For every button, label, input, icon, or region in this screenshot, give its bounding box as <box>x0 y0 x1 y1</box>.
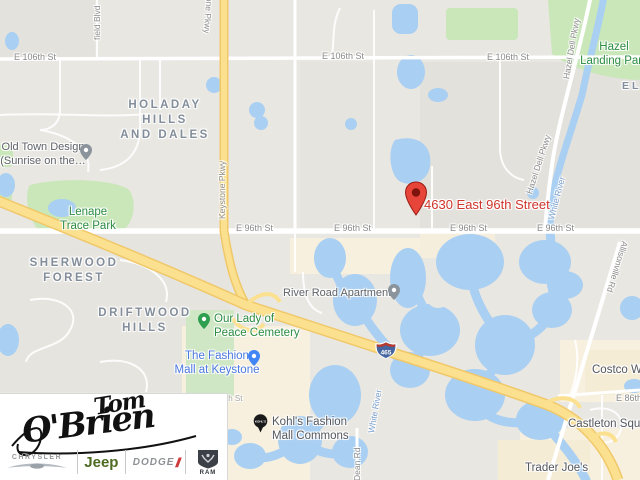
dodge-wordmark: DODGE <box>133 457 175 468</box>
poi-label-trader-joes[interactable]: Trader Joe's <box>525 462 588 474</box>
ram-head-icon <box>197 449 219 469</box>
chrysler-logo: CHRYSLER <box>4 454 70 470</box>
fashion-mall-marker[interactable] <box>248 350 260 366</box>
i465-shield-number: 465 <box>381 350 392 357</box>
neighborhood-label-sherwood: SHERWOOD FOREST <box>18 256 130 286</box>
brand-separator <box>125 450 126 474</box>
poi-label-castleton-square[interactable]: Castleton Square <box>568 418 640 430</box>
ram-logo: RAM <box>193 449 223 476</box>
street-label-e96th: E 96th St <box>236 223 273 233</box>
cemetery-marker[interactable] <box>198 313 210 329</box>
street-label-partial: th St <box>226 394 242 403</box>
road-label-westfield-blvd: field Blvd <box>92 6 102 41</box>
road-label-keystone-pkwy: Keystone Pkwy <box>217 161 227 219</box>
ram-wordmark: RAM <box>200 470 217 476</box>
road-label-dean-rd: Dean Rd <box>352 447 362 480</box>
brand-separator <box>185 450 186 474</box>
chrysler-wordmark: CHRYSLER <box>12 454 62 461</box>
kohls-marker[interactable]: KOHL'S <box>253 414 268 433</box>
street-label-e106th: E 106th St <box>14 52 56 62</box>
neighborhood-label-holaday: HOLADAY HILLS AND DALES <box>104 98 226 143</box>
poi-label-hazel-landing-park[interactable]: Hazel Landing Park <box>578 40 640 68</box>
street-label-e86th: E 86th St <box>616 393 640 403</box>
chrysler-wing-icon <box>6 461 68 470</box>
street-label-e96th: E 96th St <box>334 223 371 233</box>
dodge-stripes-icon: // <box>175 455 178 470</box>
street-label-e106th: E 106th St <box>487 52 529 62</box>
brand-logos-row: CHRYSLER Jeep DODGE // RAM <box>4 447 223 477</box>
street-label-e96th: E 96th St <box>537 223 574 233</box>
neighborhood-label-el: EL <box>622 79 640 94</box>
poi-label-lenape-trace-park[interactable]: Lenape Trace Park <box>52 205 124 233</box>
neighborhood-label-driftwood: DRIFTWOOD HILLS <box>95 306 195 336</box>
poi-label-cemetery[interactable]: Our Lady of Peace Cemetery <box>214 312 300 340</box>
street-label-e96th: E 96th St <box>450 223 487 233</box>
map-canvas[interactable]: 465 E 106th St E 106th St E 106th St E 9… <box>0 0 640 480</box>
river-road-apartments-marker[interactable] <box>388 284 400 300</box>
street-label-e106th: E 106th St <box>322 51 364 61</box>
jeep-logo: Jeep <box>84 454 118 471</box>
kohls-badge-text: KOHL'S <box>255 419 266 423</box>
old-town-design-marker[interactable] <box>80 144 92 160</box>
dodge-logo: DODGE // <box>133 455 179 470</box>
dealer-logo-box: Tom O'Brien CHRYSLER Jeep DODGE // <box>0 393 228 480</box>
destination-address-label[interactable]: 4630 East 96th Street <box>424 197 550 212</box>
poi-label-river-road-apartments[interactable]: River Road Apartments <box>283 287 397 299</box>
brand-separator <box>77 450 78 474</box>
poi-label-old-town-design[interactable]: Old Town Design (Sunrise on the… <box>0 140 86 168</box>
poi-label-costco[interactable]: Costco Wholesale <box>592 364 640 376</box>
poi-label-kohls-commons[interactable]: Kohl's Fashion Mall Commons <box>272 415 349 443</box>
